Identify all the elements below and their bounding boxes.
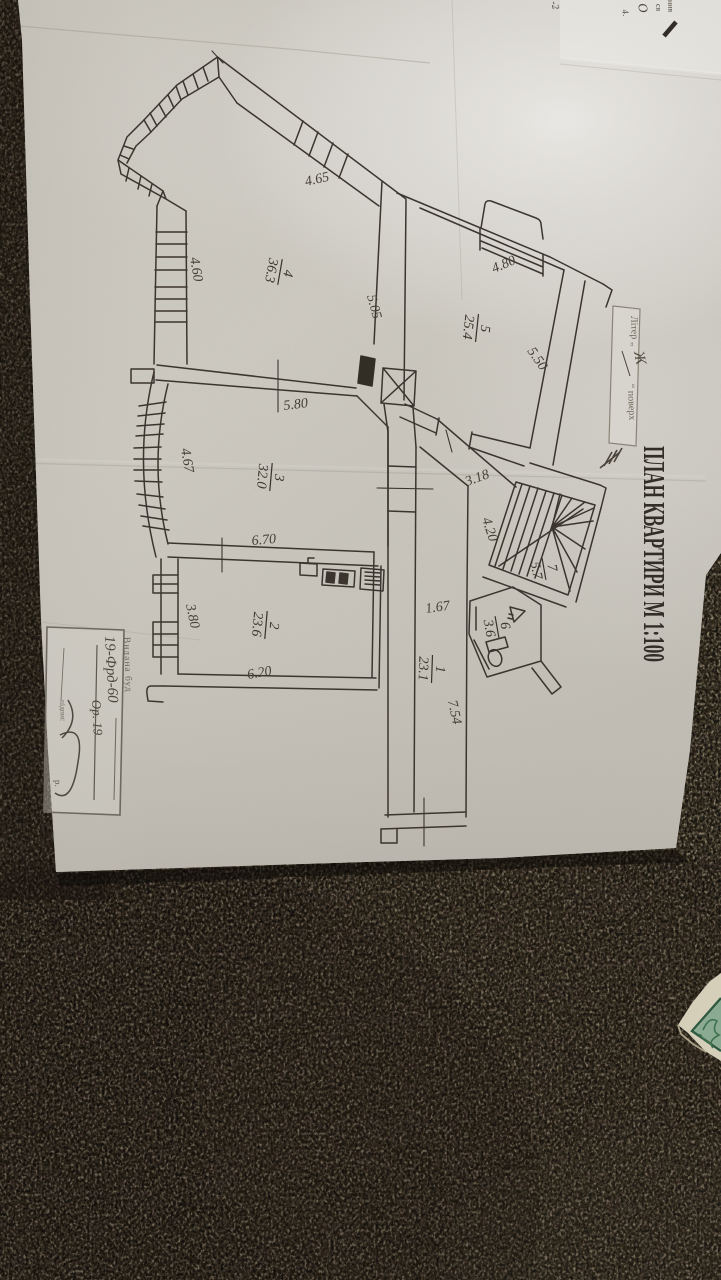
svg-text:ння: ння bbox=[666, 0, 675, 13]
svg-text:3.6: 3.6 bbox=[480, 618, 498, 639]
svg-text:р.: р. bbox=[53, 780, 63, 787]
svg-text:ся: ся bbox=[654, 4, 663, 12]
svg-text:Видана буд: Видана буд bbox=[121, 637, 134, 693]
svg-text:підпис: підпис bbox=[58, 700, 68, 722]
svg-text:32.0: 32.0 bbox=[253, 462, 270, 489]
svg-text:ПЛАН КВАРТИРИ М 1:100: ПЛАН КВАРТИРИ М 1:100 bbox=[637, 446, 670, 662]
svg-text:23.1: 23.1 bbox=[415, 656, 431, 681]
svg-text:Літер „: Літер „ bbox=[628, 316, 640, 347]
svg-text:1: 1 bbox=[432, 666, 447, 674]
svg-text:3: 3 bbox=[271, 473, 287, 482]
svg-text:25.4: 25.4 bbox=[459, 314, 476, 340]
svg-text:“ поверх: “ поверх bbox=[625, 384, 637, 421]
svg-text:2: 2 bbox=[266, 622, 282, 630]
svg-text:23.6: 23.6 bbox=[248, 611, 265, 637]
svg-text:6.70: 6.70 bbox=[251, 532, 277, 549]
svg-text:Ор. 19: Ор. 19 bbox=[89, 699, 106, 736]
svg-text:5.80: 5.80 bbox=[283, 396, 309, 414]
